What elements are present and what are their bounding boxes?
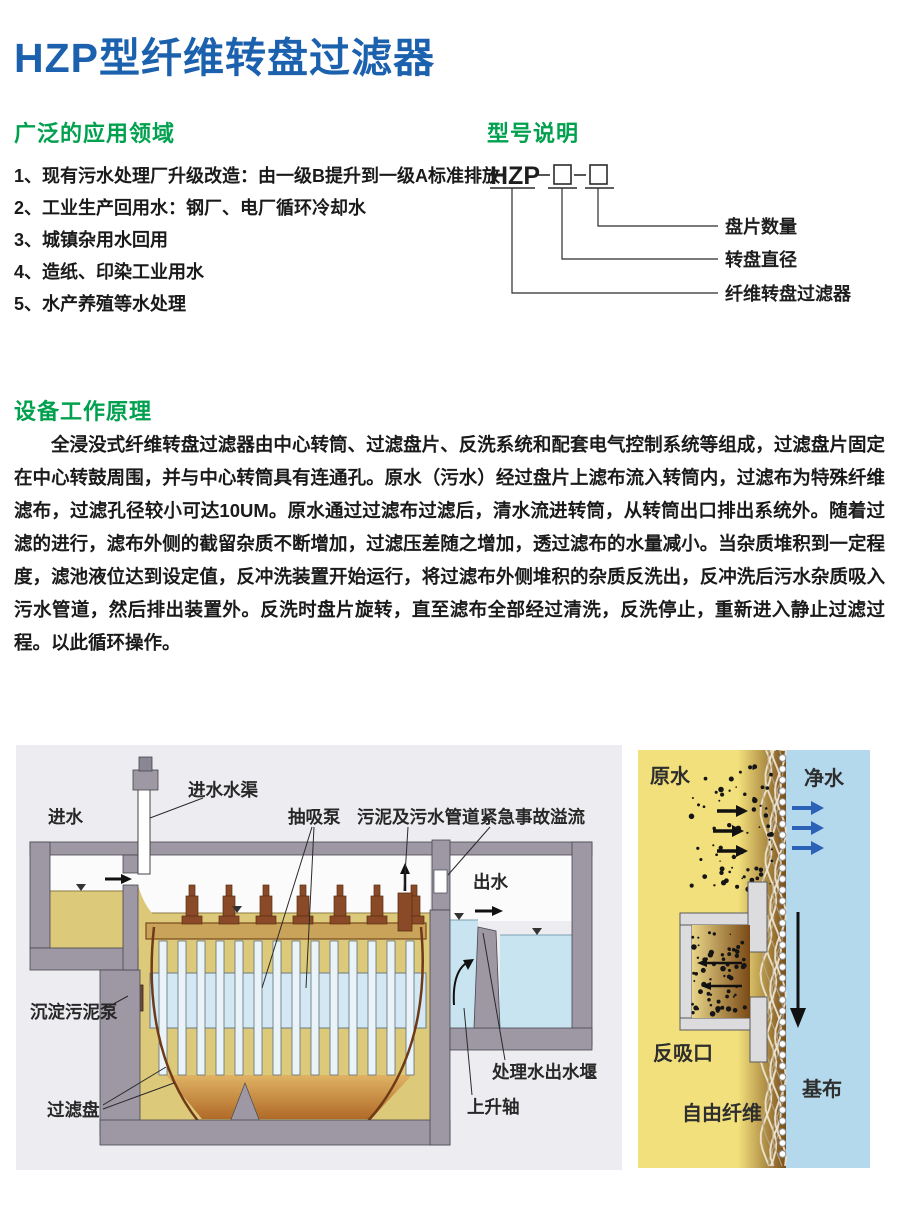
clean-flow-arrows [792, 801, 824, 855]
label-clean-water: 净水 [804, 766, 845, 790]
right-floor [450, 1028, 592, 1050]
section-heading-applications: 广泛的应用领域 [14, 116, 175, 148]
principle-paragraph: 全浸没式纤维转盘过滤器由中心转筒、过滤盘片、反洗系统和配套电气控制系统等组成，过… [14, 428, 885, 659]
left-wall [30, 842, 50, 948]
tank-cross-section-figure: 进水 进水水渠 抽吸泵 污泥及污水管道 紧急事故溢流 出水 沉淀污泥泵 过滤盘 … [16, 745, 622, 1170]
label-raw-water: 原水 [650, 765, 691, 788]
right-wall [572, 842, 592, 1045]
inlet-valve-motor [139, 757, 152, 771]
model-callout-disc-quantity: 盘片数量 [725, 216, 797, 237]
label-suction-pump: 抽吸泵 [288, 807, 341, 827]
pit-floor [100, 1120, 450, 1145]
inlet-column-top [123, 855, 138, 873]
inlet-valve-body [133, 770, 158, 790]
label-filter-disc: 过滤盘 [47, 1100, 100, 1120]
top-beam [30, 842, 592, 855]
label-inlet: 进水 [48, 807, 83, 827]
label-rising-shaft: 上升轴 [467, 1097, 520, 1117]
center-drum [150, 973, 426, 1028]
label-back-suction-port: 反吸口 [653, 1042, 713, 1065]
label-free-fiber: 自由纤维 [682, 1101, 762, 1125]
label-outlet: 出水 [473, 872, 508, 892]
clean-tank-water [500, 935, 572, 1028]
sludge-discharge-pipe [398, 893, 412, 931]
pit-right-wall [430, 910, 450, 1145]
list-item: 2、工业生产回用水：钢厂、电厂循环冷却水 [14, 192, 500, 224]
base-cloth-beads [779, 755, 786, 1158]
label-outlet-weir: 处理水出水堰 [491, 1062, 597, 1082]
label-sludge-pipe: 污泥及污水管道 [357, 807, 480, 827]
model-code: HZP [490, 162, 540, 190]
manifold [146, 923, 426, 939]
list-item: 3、城镇杂用水回用 [14, 224, 500, 256]
label-settled-sludge-pump: 沉淀污泥泵 [30, 1002, 118, 1022]
label-inlet-channel: 进水水渠 [188, 780, 258, 800]
label-emergency-overflow: 紧急事故溢流 [480, 807, 585, 827]
list-item: 5、水产养殖等水处理 [14, 288, 500, 320]
page-title: HZP型纤维转盘过滤器 [14, 24, 435, 84]
lower-left-wall [100, 970, 140, 1135]
model-callout-disc-diameter: 转盘直径 [725, 249, 797, 270]
model-callout-filter-name: 纤维转盘过滤器 [725, 283, 852, 304]
model-designation-diagram: HZP 盘片数量 转盘直径 纤维转盘过滤器 [478, 156, 898, 356]
inlet-column-bottom [123, 885, 138, 970]
section-heading-principle: 设备工作原理 [14, 394, 152, 426]
overflow-opening [434, 870, 447, 893]
list-item: 4、造纸、印染工业用水 [14, 256, 500, 288]
filtration-principle-figure: 原水 净水 反吸口 基布 自由纤维 [638, 750, 870, 1168]
inlet-channel-pipe [138, 788, 150, 874]
label-base-cloth: 基布 [802, 1077, 842, 1101]
suction-box-interior [692, 925, 750, 1018]
application-list: 1、现有污水处理厂升级改造：由一级B提升到一级A标准排放 2、工业生产回用水：钢… [14, 160, 500, 320]
list-item: 1、现有污水处理厂升级改造：由一级B提升到一级A标准排放 [14, 160, 500, 192]
section-heading-model: 型号说明 [487, 116, 579, 148]
inlet-floor [30, 948, 138, 970]
outlet-weir-wall [474, 927, 500, 1028]
